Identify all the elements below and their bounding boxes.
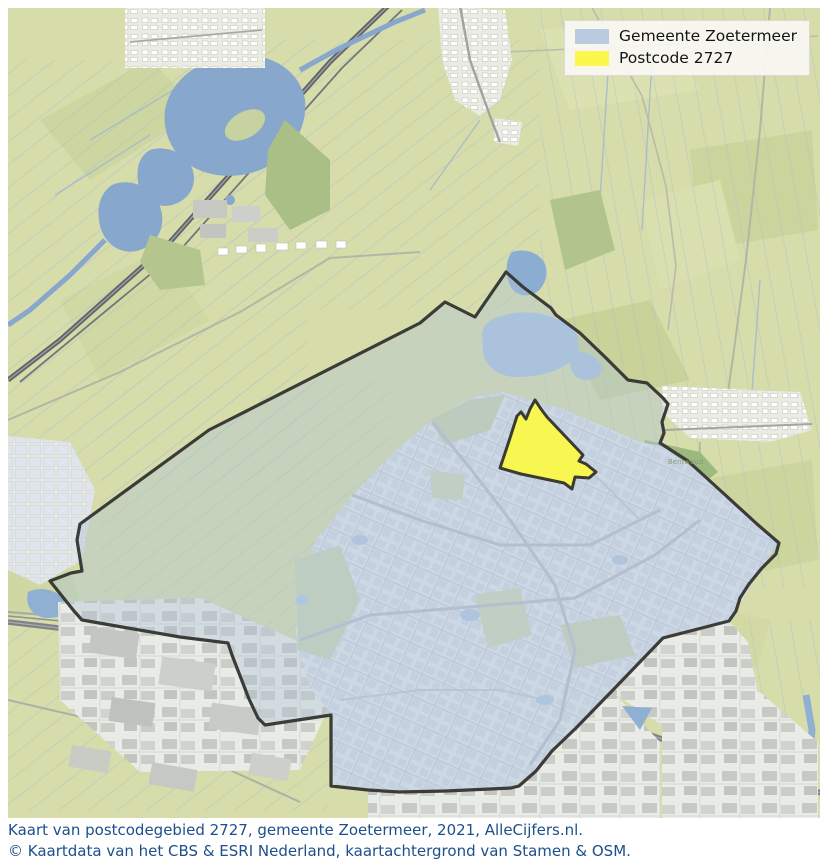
map-decoration [494,118,522,146]
map-decoration [193,200,227,218]
map-label-bentwoud: Bentwoud [668,458,703,466]
map-caption: Kaart van postcodegebied 2727, gemeente … [8,820,820,861]
map-legend: Gemeente Zoetermeer Postcode 2727 [564,20,810,76]
legend-label-gemeente: Gemeente Zoetermeer [619,28,797,45]
legend-item-gemeente: Gemeente Zoetermeer [575,28,797,45]
caption-attribution: © Kaartdata van het CBS & ESRI Nederland… [8,841,820,861]
map-decoration [236,246,247,253]
map-decoration [296,242,306,249]
map-svg: Bentwoud [8,8,820,818]
legend-label-postcode: Postcode 2727 [619,50,733,67]
caption-title: Kaart van postcodegebied 2727, gemeente … [8,820,820,841]
legend-item-postcode: Postcode 2727 [575,50,797,67]
map-decoration [218,248,228,255]
map-decoration [200,224,226,238]
map-decoration [336,241,346,248]
map-decoration [248,228,278,242]
map-decoration [316,241,327,248]
map-decoration [125,8,265,68]
map-decoration [256,244,266,252]
legend-swatch-gemeente [575,29,609,44]
legend-swatch-postcode [575,51,609,66]
map-figure: Bentwoud Gemeente Zoetermeer Postcode 27… [0,0,828,861]
map-canvas[interactable]: Bentwoud Gemeente Zoetermeer Postcode 27… [8,8,820,818]
map-decoration [232,206,260,222]
map-decoration [276,243,288,250]
